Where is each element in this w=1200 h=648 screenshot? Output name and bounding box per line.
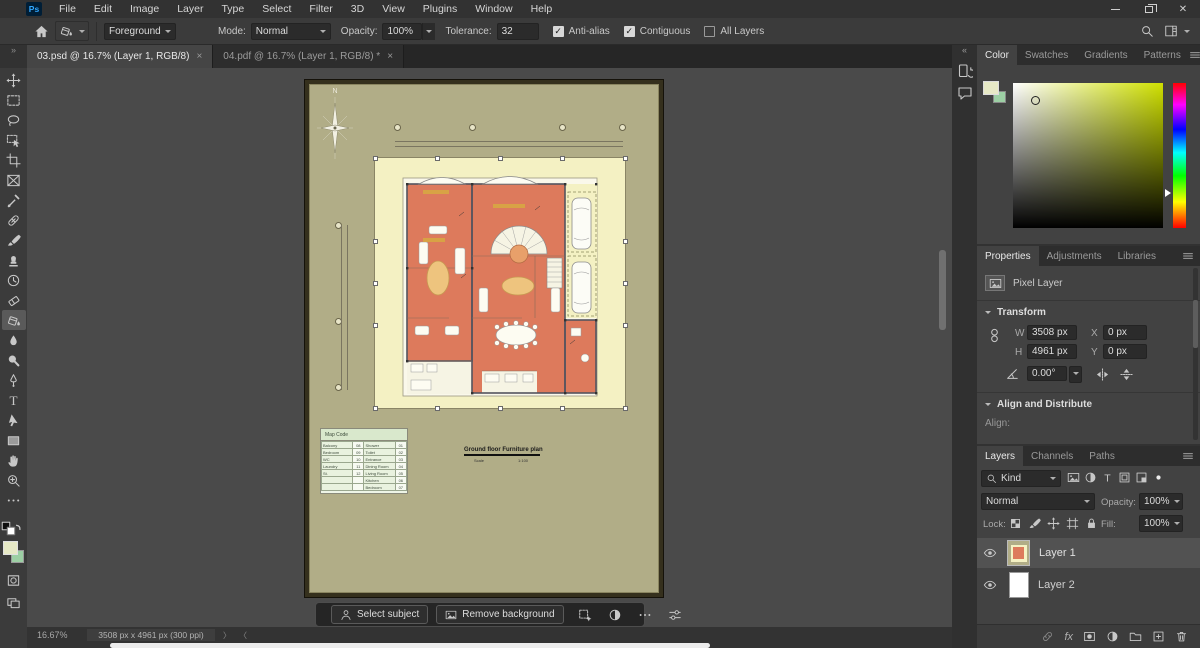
legend-table: Balcony08Shower01Bedroom09Toilet02WC10En… [321, 441, 407, 491]
transform-handle[interactable] [435, 406, 440, 411]
eraser-icon [6, 293, 21, 308]
legend-title: Map Code [321, 429, 407, 441]
adjustments-icon[interactable] [608, 608, 622, 622]
clone-stamp-tool[interactable] [2, 250, 26, 270]
tolerance-label: Tolerance: [445, 26, 491, 37]
transform-handle[interactable] [560, 406, 565, 411]
layer-effects-icon[interactable]: fx [1064, 631, 1073, 643]
layer-filter-dropdown[interactable]: Kind [981, 470, 1061, 487]
panel-collapse-chevrons[interactable]: « [952, 45, 977, 58]
pixel-layer-label: Pixel Layer [1013, 278, 1062, 289]
grid-bubble [469, 124, 476, 131]
menu-plugins[interactable]: Plugins [414, 0, 466, 18]
crop-tool[interactable] [2, 150, 26, 170]
menu-select[interactable]: Select [253, 0, 300, 18]
mode-value: Normal [256, 26, 288, 37]
canvas-horizontal-scrollbar[interactable] [110, 643, 710, 648]
dimension-line [395, 146, 623, 147]
dimension-line [341, 225, 342, 390]
legend-row: Balcony08Shower01 [322, 442, 407, 449]
y-label: Y [1091, 347, 1098, 358]
opacity-label: Opacity: [341, 26, 378, 37]
document-03psd[interactable]: N [305, 80, 663, 597]
angle-icon [1005, 367, 1019, 381]
remove-background-label: Remove background [462, 609, 554, 620]
legend-row: Kitchen06 [322, 477, 407, 484]
search-icon[interactable] [1140, 24, 1154, 38]
transform-handle[interactable] [623, 323, 628, 328]
select-subject-label: Select subject [357, 609, 419, 620]
workspace-switcher[interactable] [1164, 24, 1190, 38]
search-icon [986, 473, 997, 484]
chevron-down-icon [79, 30, 85, 36]
layer-2-thumbnail[interactable] [1009, 572, 1029, 598]
more-options-icon[interactable] [638, 608, 652, 622]
plan-title: Ground floor Furniture plan [464, 447, 574, 453]
document-info: 3508 px x 4961 px (300 ppi) [87, 629, 215, 641]
color-field[interactable] [1013, 83, 1163, 228]
frame-tool[interactable] [2, 170, 26, 190]
menu-filter[interactable]: Filter [300, 0, 341, 18]
width-label: W [1015, 328, 1024, 339]
contiguous-checkbox[interactable]: ✓ Contiguous [624, 26, 691, 37]
legend-row: Bedroom09Toilet02 [322, 449, 407, 456]
angle-dropdown-button[interactable] [1069, 366, 1082, 383]
spot-healing-icon [6, 213, 21, 228]
foreground-color-swatch[interactable] [3, 541, 18, 555]
map-code-legend: Map Code Balcony08Shower01Bedroom09Toile… [320, 428, 408, 494]
lock-label: Lock: [983, 519, 1006, 530]
transform-handle[interactable] [623, 156, 628, 161]
align-header-label: Align and Distribute [997, 399, 1092, 410]
move-tool[interactable] [2, 70, 26, 90]
chevron-down-icon [985, 311, 991, 317]
tab-properties[interactable]: Properties [977, 246, 1039, 266]
floor-plan [375, 158, 625, 408]
tab-layers[interactable]: Layers [977, 446, 1023, 466]
anti-alias-checkbox[interactable]: ✓ Anti-alias [553, 26, 610, 37]
transform-handle[interactable] [373, 281, 378, 286]
panel-menu-icon[interactable] [1182, 246, 1200, 266]
grid-bubble [559, 124, 566, 131]
layers-opacity-input[interactable]: 100% [1139, 493, 1183, 510]
color-swatches [3, 536, 25, 566]
chevron-down-icon [1174, 522, 1180, 528]
tab-adjustments[interactable]: Adjustments [1039, 246, 1110, 266]
new-group-icon[interactable] [1129, 630, 1142, 643]
toolbar: T [0, 68, 27, 648]
new-adjustment-icon[interactable] [1106, 630, 1119, 643]
clone-stamp-icon [6, 253, 21, 268]
flip-horizontal-icon[interactable] [1095, 367, 1110, 382]
opacity-control[interactable]: 100% [382, 23, 435, 40]
type-icon: T [6, 393, 21, 408]
chevron-down-icon [1174, 500, 1180, 506]
x-input[interactable]: 0 px [1103, 325, 1147, 340]
transform-handle[interactable] [623, 406, 628, 411]
chevron-down-icon [320, 30, 326, 36]
paint-bucket-icon [59, 24, 73, 38]
tab-04pdf-label: 04.pdf @ 16.7% (Layer 1, RGB/8) * [223, 51, 380, 62]
all-layers-checkbox[interactable]: All Layers [704, 26, 764, 37]
brush-tool[interactable] [2, 230, 26, 250]
toolbar-collapse-chevrons[interactable]: » [0, 45, 27, 68]
comments-panel-icon[interactable] [956, 84, 974, 102]
transform-handle[interactable] [435, 156, 440, 161]
menu-layer[interactable]: Layer [168, 0, 212, 18]
transform-handle[interactable] [623, 281, 628, 286]
menu-edit[interactable]: Edit [85, 0, 121, 18]
transform-handle[interactable] [560, 156, 565, 161]
paint-bucket-icon [6, 313, 21, 328]
layers-panel-footer: fx [977, 624, 1200, 648]
transform-handle[interactable] [373, 156, 378, 161]
history-brush-icon [6, 273, 21, 288]
pen-tool[interactable] [2, 370, 26, 390]
tab-03psd[interactable]: 03.psd @ 16.7% (Layer 1, RGB/8) × [27, 45, 213, 68]
type-tool[interactable]: T [2, 390, 26, 410]
filter-pixel-layers-icon[interactable] [1067, 471, 1080, 484]
lock-artboard-icon[interactable] [1066, 517, 1079, 530]
tab-swatches[interactable]: Swatches [1017, 45, 1076, 65]
angle-input[interactable]: 0.00° [1027, 366, 1067, 381]
lock-position-icon[interactable] [1047, 517, 1060, 530]
transform-handle[interactable] [623, 239, 628, 244]
layer-row-2[interactable]: Layer 2 [977, 570, 1200, 600]
lasso-tool[interactable] [2, 110, 26, 130]
lock-pixels-icon[interactable] [1028, 517, 1041, 530]
grid-bubble [619, 124, 626, 131]
edit-toolbar-tool[interactable] [2, 490, 26, 510]
menu-window[interactable]: Window [466, 0, 521, 18]
lock-all-icon[interactable] [1085, 517, 1098, 530]
chevron-down-icon [165, 30, 171, 36]
fill-source-dropdown[interactable]: Foreground [104, 23, 176, 40]
quick-mask-icon [6, 573, 21, 588]
tab-color[interactable]: Color [977, 45, 1017, 65]
constrain-link-icon[interactable] [987, 328, 1002, 343]
dodge-icon [6, 353, 21, 368]
y-input[interactable]: 0 px [1103, 344, 1147, 359]
height-input[interactable]: 4961 px [1027, 344, 1077, 359]
blend-mode-dropdown[interactable]: Normal [981, 493, 1095, 510]
checkbox-unchecked-icon [704, 26, 715, 37]
photoshop-logo-icon: Ps [26, 2, 42, 16]
pixel-layer-icon [985, 275, 1005, 291]
filter-type-layers-icon[interactable]: T [1101, 471, 1114, 484]
separator [96, 22, 97, 41]
select-subject-button[interactable]: Select subject [331, 605, 428, 624]
properties-scrollbar-thumb[interactable] [1193, 300, 1198, 348]
tab-gradients[interactable]: Gradients [1076, 45, 1135, 65]
tolerance-value: 32 [502, 26, 513, 37]
transform-handle[interactable] [373, 406, 378, 411]
checkbox-checked-icon: ✓ [624, 26, 635, 37]
visibility-eye-icon[interactable] [977, 546, 1003, 560]
layers-opacity-label: Opacity: [1101, 497, 1136, 508]
transform-header-label: Transform [997, 307, 1046, 318]
layers-opacity-value: 100% [1144, 496, 1170, 507]
opacity-input[interactable]: 100% [382, 23, 422, 40]
collapsed-panel-dock: « [952, 45, 977, 648]
close-icon[interactable]: × [387, 51, 393, 62]
opacity-value: 100% [387, 26, 413, 37]
color-panel-group: Color Swatches Gradients Patterns [977, 45, 1200, 244]
width-input[interactable]: 3508 px [1027, 325, 1077, 340]
legend-row: Bedroom07 [322, 484, 407, 491]
chevron-down-icon [1184, 30, 1190, 36]
rect-marquee-icon [6, 93, 21, 108]
eyedropper-icon [6, 193, 21, 208]
dimension-line [395, 141, 623, 142]
filter-adjustment-layers-icon[interactable] [1084, 471, 1097, 484]
panel-foreground-swatch[interactable] [983, 81, 999, 95]
legend-row: Laundry11Dining Room04 [322, 463, 407, 470]
chevron-down-icon [1084, 500, 1090, 506]
layers-panel-group: Layers Channels Paths Kind T [977, 446, 1200, 648]
tool-preset-button[interactable] [55, 21, 89, 41]
tolerance-input[interactable]: 32 [497, 23, 539, 40]
hue-slider-arrow[interactable] [1165, 189, 1175, 197]
tab-channels[interactable]: Channels [1023, 446, 1081, 466]
swap-colors-icon[interactable] [1, 521, 23, 535]
fill-source-value: Foreground [109, 26, 161, 37]
brush-icon [6, 233, 21, 248]
mode-dropdown[interactable]: Normal [251, 23, 331, 40]
lock-transparent-icon[interactable] [1009, 517, 1022, 530]
minimize-icon [1111, 9, 1120, 10]
kind-label: Kind [1001, 473, 1021, 484]
restore-icon [1145, 6, 1153, 13]
path-selection-tool[interactable] [2, 410, 26, 430]
tab-03psd-label: 03.psd @ 16.7% (Layer 1, RGB/8) [37, 51, 189, 62]
quick-mask-button[interactable] [1, 570, 25, 590]
blur-tool[interactable] [2, 330, 26, 350]
minimize-button[interactable] [1098, 0, 1132, 18]
workspace-icon [1164, 24, 1178, 38]
transform-section-header[interactable]: Transform [985, 307, 1046, 318]
flip-vertical-icon[interactable] [1119, 367, 1134, 382]
dodge-tool[interactable] [2, 350, 26, 370]
eraser-tool[interactable] [2, 290, 26, 310]
options-bar: Foreground Mode: Normal Opacity: 100% To… [0, 18, 1200, 45]
hue-slider[interactable] [1173, 83, 1186, 228]
zoom-tool[interactable] [2, 470, 26, 490]
object-selection-tool[interactable] [2, 130, 26, 150]
layer-2-name[interactable]: Layer 2 [1038, 579, 1075, 591]
chevron-down-icon [985, 403, 991, 409]
x-label: X [1091, 328, 1098, 339]
compass-north-label: N [315, 88, 355, 95]
height-label: H [1015, 347, 1022, 358]
panel-menu-icon[interactable] [1189, 45, 1200, 65]
svg-text:T: T [9, 393, 17, 408]
status-bar: 16.67% 3508 px x 4961 px (300 ppi) 〉 〈 [27, 627, 952, 648]
properties-panel-group: Properties Adjustments Libraries Pixel L… [977, 246, 1200, 444]
color-selector-ring[interactable] [1031, 96, 1040, 105]
legend-row: St.12Living Room05 [322, 470, 407, 477]
fill-value: 100% [1144, 518, 1170, 529]
canvas-area[interactable]: N [27, 68, 952, 627]
plan-title-block: Ground floor Furniture plan Scale 1:100 [464, 447, 574, 463]
restore-button[interactable] [1132, 0, 1166, 18]
anti-alias-label: Anti-alias [569, 26, 610, 37]
image-icon [445, 609, 457, 621]
person-icon [340, 609, 352, 621]
legend-row: WC10Entrance03 [322, 456, 407, 463]
checkbox-checked-icon: ✓ [553, 26, 564, 37]
taskbar-properties-icon[interactable] [668, 608, 682, 622]
compass-rose: N [315, 88, 355, 161]
history-brush-tool[interactable] [2, 270, 26, 290]
filter-smart-objects-icon[interactable] [1135, 471, 1148, 484]
fill-label: Fill: [1101, 519, 1116, 530]
layer-1-thumbnail[interactable] [1007, 540, 1030, 566]
add-mask-icon[interactable] [1083, 630, 1096, 643]
paint-bucket-tool[interactable] [2, 310, 26, 330]
layer-1-name[interactable]: Layer 1 [1039, 547, 1076, 559]
dimension-line [347, 225, 348, 390]
link-layers-icon[interactable] [1041, 630, 1054, 643]
blend-mode-value: Normal [986, 496, 1018, 507]
close-icon[interactable]: × [196, 51, 202, 62]
spot-healing-tool[interactable] [2, 210, 26, 230]
zoom-icon [6, 473, 21, 488]
scale-value: 1:100 [518, 458, 528, 463]
menu-file[interactable]: File [50, 0, 85, 18]
rect-marquee-tool[interactable] [2, 90, 26, 110]
menu-image[interactable]: Image [121, 0, 168, 18]
menu-bar: Ps File Edit Image Layer Type Select Fil… [0, 0, 1200, 18]
move-icon [6, 73, 21, 88]
delete-layer-icon[interactable] [1175, 630, 1188, 643]
grid-bubble [394, 124, 401, 131]
screen-mode-icon [6, 595, 21, 610]
remove-background-button[interactable]: Remove background [436, 605, 563, 624]
crop-icon [6, 153, 21, 168]
transform-handle[interactable] [373, 239, 378, 244]
panel-menu-icon[interactable] [1182, 446, 1200, 466]
tab-04pdf[interactable]: 04.pdf @ 16.7% (Layer 1, RGB/8) * × [213, 45, 404, 68]
mode-label: Mode: [218, 26, 246, 37]
close-button[interactable]: ✕ [1166, 0, 1200, 18]
chevron-down-icon [1050, 477, 1056, 483]
zoom-level[interactable]: 16.67% [37, 630, 68, 640]
scale-label: Scale [474, 458, 484, 463]
align-section-header[interactable]: Align and Distribute [985, 399, 1092, 410]
contiguous-label: Contiguous [640, 26, 691, 37]
rectangle-icon [6, 433, 21, 448]
hand-tool[interactable] [2, 450, 26, 470]
path-selection-icon [6, 413, 21, 428]
rectangle-tool[interactable] [2, 430, 26, 450]
menu-type[interactable]: Type [212, 0, 253, 18]
history-panel-icon[interactable] [956, 62, 974, 80]
opacity-dropdown-button[interactable] [422, 23, 435, 40]
filter-on-indicator[interactable] [1152, 471, 1165, 484]
panel-dock: Color Swatches Gradients Patterns Proper… [977, 45, 1200, 648]
transform-sparkle-icon[interactable] [578, 608, 592, 622]
lasso-icon [6, 113, 21, 128]
contextual-task-bar: Select subject Remove background [315, 602, 645, 627]
new-layer-icon[interactable] [1152, 630, 1165, 643]
photoshop-window: Ps File Edit Image Layer Type Select Fil… [0, 0, 1200, 648]
blur-icon [6, 333, 21, 348]
object-selection-icon [6, 133, 21, 148]
properties-scrollbar[interactable] [1193, 268, 1198, 440]
hand-icon [6, 453, 21, 468]
tab-patterns[interactable]: Patterns [1136, 45, 1189, 65]
all-layers-label: All Layers [720, 26, 764, 37]
transform-handle[interactable] [373, 323, 378, 328]
window-controls: ✕ [1098, 0, 1200, 18]
eyedropper-tool[interactable] [2, 190, 26, 210]
visibility-eye-icon[interactable] [977, 578, 1003, 592]
tab-libraries[interactable]: Libraries [1110, 246, 1164, 266]
frame-icon [6, 173, 21, 188]
document-tab-bar: » 03.psd @ 16.7% (Layer 1, RGB/8) × 04.p… [0, 45, 952, 68]
menu-view[interactable]: View [373, 0, 414, 18]
status-next-icon[interactable]: 〉 [223, 630, 231, 641]
edit-toolbar-icon [6, 493, 21, 508]
screen-mode-button[interactable] [1, 592, 25, 612]
layer-row-1[interactable]: Layer 1 [977, 538, 1200, 568]
tab-paths[interactable]: Paths [1081, 446, 1123, 466]
pen-icon [6, 373, 21, 388]
canvas-vertical-scrollbar[interactable] [939, 250, 946, 330]
menu-3d[interactable]: 3D [342, 0, 373, 18]
title-underline [464, 454, 540, 456]
fill-input[interactable]: 100% [1139, 515, 1183, 532]
transform-handle[interactable] [498, 156, 503, 161]
svg-text:T: T [1104, 473, 1111, 484]
transform-handle[interactable] [498, 406, 503, 411]
home-icon[interactable] [34, 24, 49, 39]
chevron-down-icon [426, 30, 432, 36]
align-label: Align: [985, 418, 1010, 429]
status-prev-icon[interactable]: 〈 [239, 630, 247, 641]
menu-help[interactable]: Help [522, 0, 562, 18]
floor-plan-paper [375, 158, 625, 408]
filter-shape-layers-icon[interactable] [1118, 471, 1131, 484]
